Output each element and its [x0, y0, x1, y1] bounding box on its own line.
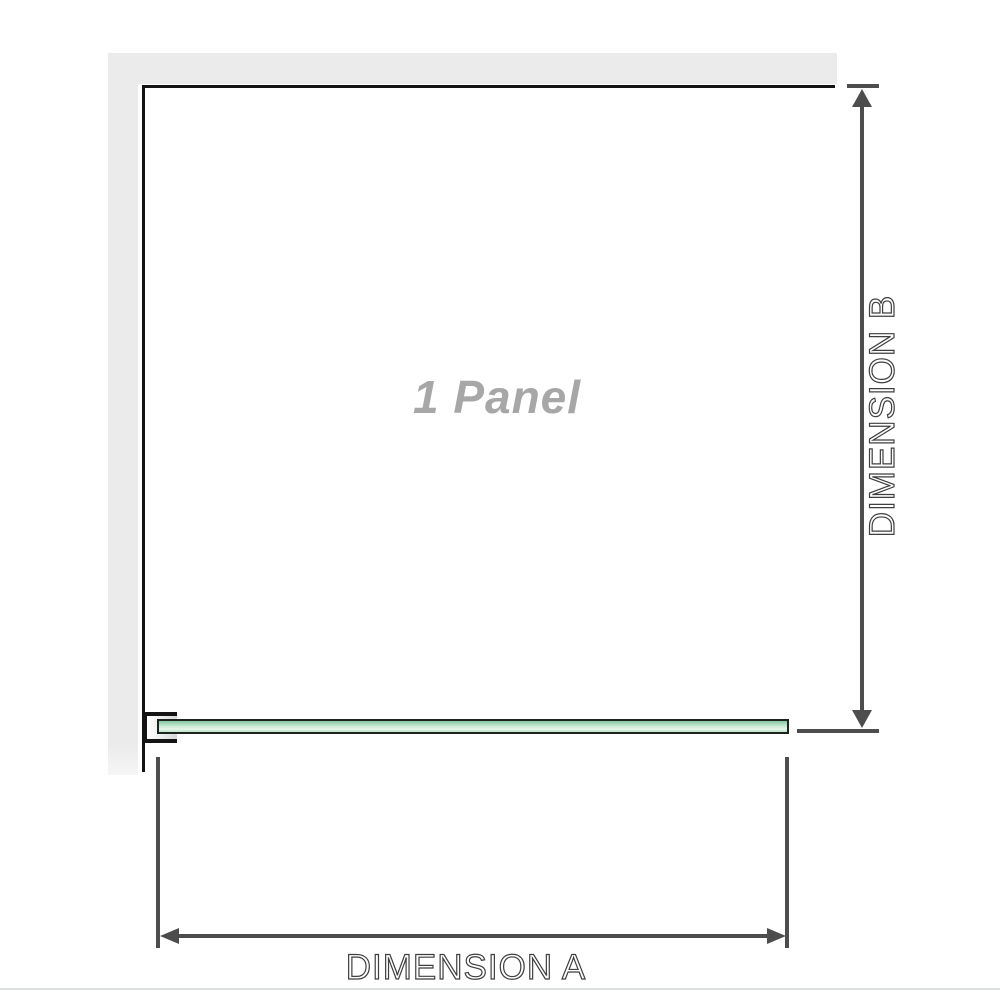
wall-top-band: [108, 53, 837, 84]
panel-area-top-border: [142, 85, 835, 88]
arrow-up-icon: [852, 89, 872, 107]
diagram-canvas: 1 Panel DIMENSION B DIMENSION A: [0, 0, 1000, 1000]
arrow-right-icon: [767, 928, 786, 944]
dimension-a-line: [165, 934, 781, 938]
wall-left-band: [108, 53, 138, 775]
dimension-b-label: DIMENSION B: [863, 295, 903, 537]
panel-count-label: 1 Panel: [413, 370, 581, 424]
glass-panel-bar: [157, 719, 789, 734]
panel-area-left-border: [142, 85, 145, 772]
bottom-divider-line: [0, 988, 1000, 990]
dimension-b-bottom-cap: [797, 729, 879, 733]
dimension-a-label: DIMENSION A: [346, 948, 586, 988]
arrow-down-icon: [852, 710, 872, 728]
arrow-left-icon: [160, 928, 179, 944]
dimension-a-right-extension: [785, 757, 789, 948]
dimension-a-left-extension: [156, 757, 160, 948]
dimension-b-top-cap: [847, 84, 879, 88]
